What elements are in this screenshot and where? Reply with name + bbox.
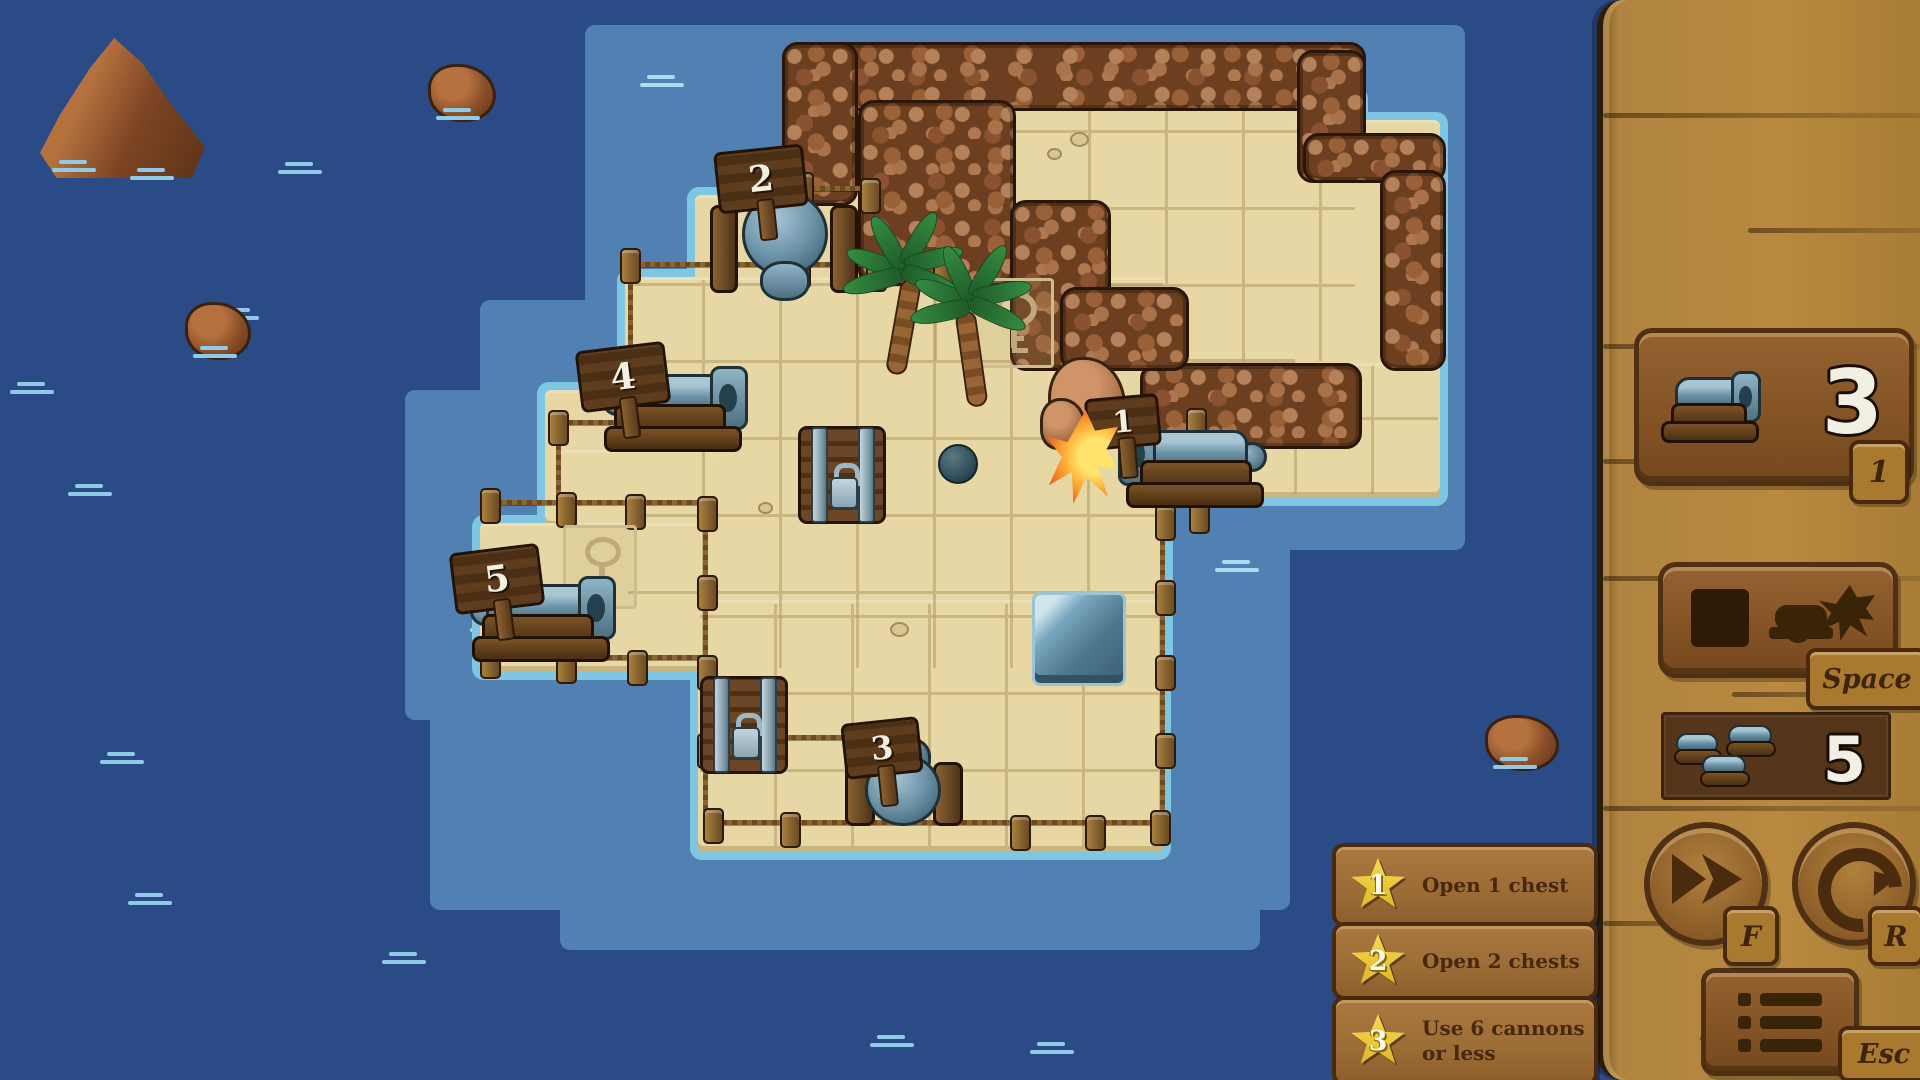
sign-number: 1: [1111, 404, 1135, 441]
star-number: 2: [1350, 946, 1406, 977]
hud-panel: 3 1 Space 5: [1597, 0, 1920, 1080]
cannon-icon: [1661, 363, 1781, 453]
pebble: [1070, 132, 1089, 147]
star-icon: 2: [1350, 934, 1406, 988]
menu-list-icon: [1738, 1039, 1822, 1052]
hotkey-badge-f: F: [1723, 906, 1779, 966]
pebble: [758, 502, 773, 514]
fence-post: [697, 575, 718, 611]
water-pit-tile: [1032, 592, 1126, 686]
hotkey-badge-space: Space: [1806, 648, 1920, 710]
objective-row-1: 1 Open 1 chest: [1332, 843, 1598, 927]
cannonball: [938, 444, 978, 484]
plank-seam: [1603, 806, 1920, 811]
fence-post: [1155, 655, 1176, 691]
menu-list-icon: [1738, 993, 1822, 1006]
fence-post: [1155, 580, 1176, 616]
objective-row-3: 3 Use 6 cannons or less: [1332, 996, 1598, 1080]
cannon-slot-icon: [1691, 589, 1749, 647]
padlock-icon: [830, 477, 858, 509]
star-icon: 1: [1350, 858, 1406, 912]
cannon-sign-2: 2: [713, 143, 809, 214]
sea-rock: [1485, 715, 1559, 771]
objective-text: Open 2 chests: [1422, 949, 1580, 974]
pebble: [1047, 148, 1062, 160]
padlock-icon: [732, 727, 760, 759]
objective-row-2: 2 Open 2 chests: [1332, 922, 1598, 1000]
fence-post: [556, 492, 577, 528]
palm-tree: [925, 255, 1045, 415]
objective-text: Use 6 cannons or less: [1422, 1016, 1586, 1066]
star-number: 3: [1350, 1026, 1406, 1057]
cannon-count: 3: [1822, 351, 1883, 454]
fast-forward-icon: [1702, 854, 1742, 904]
sign-number: 5: [482, 557, 512, 602]
menu-list-icon: [1738, 1016, 1822, 1029]
fence-post: [1150, 810, 1171, 846]
hotkey-badge-1: 1: [1849, 440, 1909, 504]
sea-rock: [428, 64, 496, 122]
cannon-sign-4: 4: [575, 341, 672, 414]
cannon-sign-3: 3: [840, 716, 923, 780]
fence-post: [480, 488, 501, 524]
fence-post: [780, 812, 801, 848]
sea-rock: [40, 38, 205, 178]
plank-seam: [1748, 228, 1920, 233]
star-number: 1: [1350, 870, 1406, 901]
game-screen: 2 4 5 1 3 3 1: [0, 0, 1920, 1080]
fence-post: [697, 496, 718, 532]
fence-post: [548, 410, 569, 446]
hotkey-badge-r: R: [1868, 906, 1920, 966]
rock-wall: [1380, 170, 1446, 371]
fast-forward-icon: [1672, 854, 1706, 904]
fence-post: [620, 248, 641, 284]
rope-fence: [482, 500, 712, 505]
fence-post: [1155, 733, 1176, 769]
fence-post: [1010, 815, 1031, 851]
sign-number: 4: [608, 355, 638, 400]
cannon-sign-5: 5: [449, 543, 546, 616]
treasure-chest: [798, 426, 886, 524]
cannons-used-counter: 5: [1661, 712, 1891, 800]
treasure-chest: [700, 676, 788, 774]
objective-text: Open 1 chest: [1422, 873, 1568, 898]
plank-seam: [1603, 113, 1920, 118]
hotkey-badge-esc: Esc: [1838, 1026, 1920, 1080]
sign-number: 3: [869, 728, 895, 768]
menu-button[interactable]: [1701, 968, 1859, 1076]
cannons-used-value: 5: [1823, 723, 1866, 796]
fence-post: [860, 178, 881, 214]
pebble: [890, 622, 909, 637]
triple-cannon-icon: [1672, 721, 1792, 791]
star-icon: 3: [1350, 1014, 1406, 1068]
fence-post: [703, 808, 724, 844]
fence-post: [1085, 815, 1106, 851]
firing-cannon-icon: [1767, 587, 1877, 655]
sign-number: 2: [746, 157, 775, 201]
